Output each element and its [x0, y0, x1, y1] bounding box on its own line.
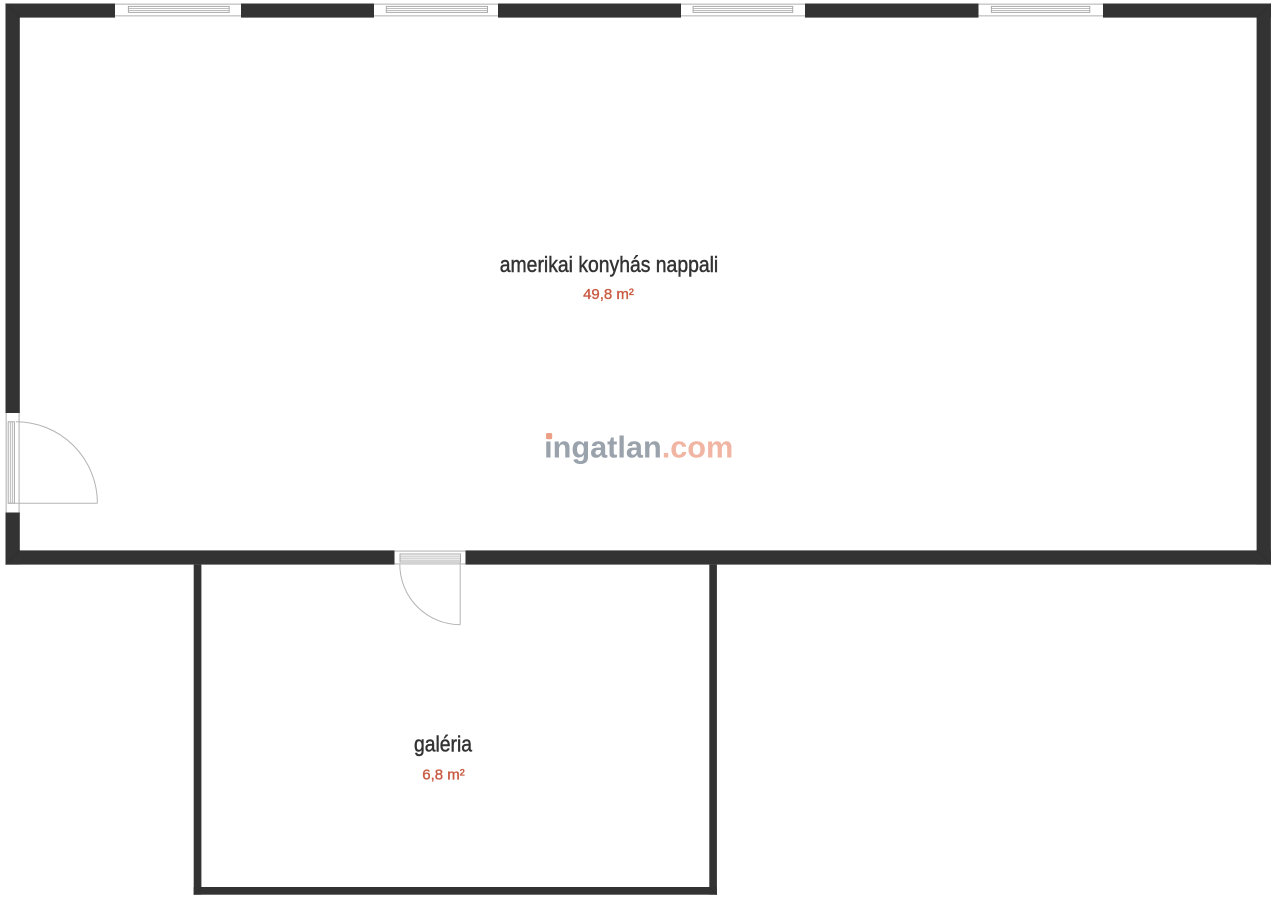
svg-text:49,8 m²: 49,8 m² — [583, 286, 634, 303]
svg-text:ingatlan.com: ingatlan.com — [544, 430, 733, 465]
svg-text:6,8 m²: 6,8 m² — [422, 767, 465, 784]
svg-text:galéria: galéria — [414, 732, 473, 756]
svg-text:amerikai konyhás nappali: amerikai konyhás nappali — [500, 253, 718, 277]
